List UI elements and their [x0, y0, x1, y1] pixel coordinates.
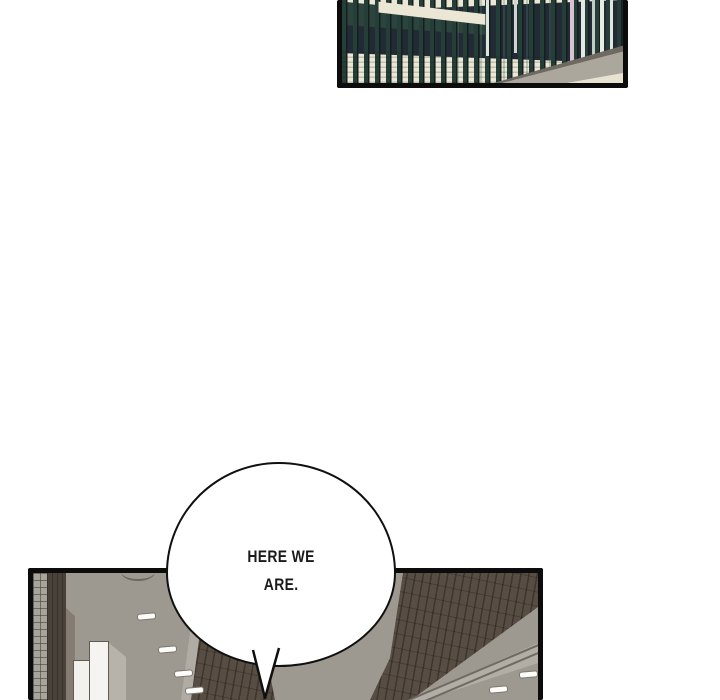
fence-highlight-bar	[581, 0, 585, 58]
speech-line-1: HERE WE	[247, 543, 314, 570]
ceiling-light	[519, 670, 538, 679]
comic-page: HERE WE ARE.	[0, 0, 720, 700]
white-pillar	[73, 660, 90, 700]
fence-highlight-bar	[486, 0, 489, 56]
speech-bubble-text: HERE WE ARE.	[168, 470, 394, 671]
ceiling-light	[137, 612, 157, 621]
speech-line-2: ARE.	[264, 571, 299, 598]
dark-column	[47, 573, 66, 700]
fence-pink-bar	[570, 0, 574, 61]
panel-fence	[337, 0, 628, 88]
speech-bubble: HERE WE ARE.	[166, 462, 396, 667]
grid-wall	[33, 573, 47, 700]
fence-highlight-bar	[592, 0, 595, 55]
fence-scene	[342, 0, 623, 83]
ceiling-notch	[121, 573, 155, 581]
speech-bubble-tail	[250, 646, 284, 700]
white-pillar	[89, 641, 109, 700]
fence-highlight-bar	[514, 0, 517, 53]
ceiling-light	[489, 685, 509, 694]
